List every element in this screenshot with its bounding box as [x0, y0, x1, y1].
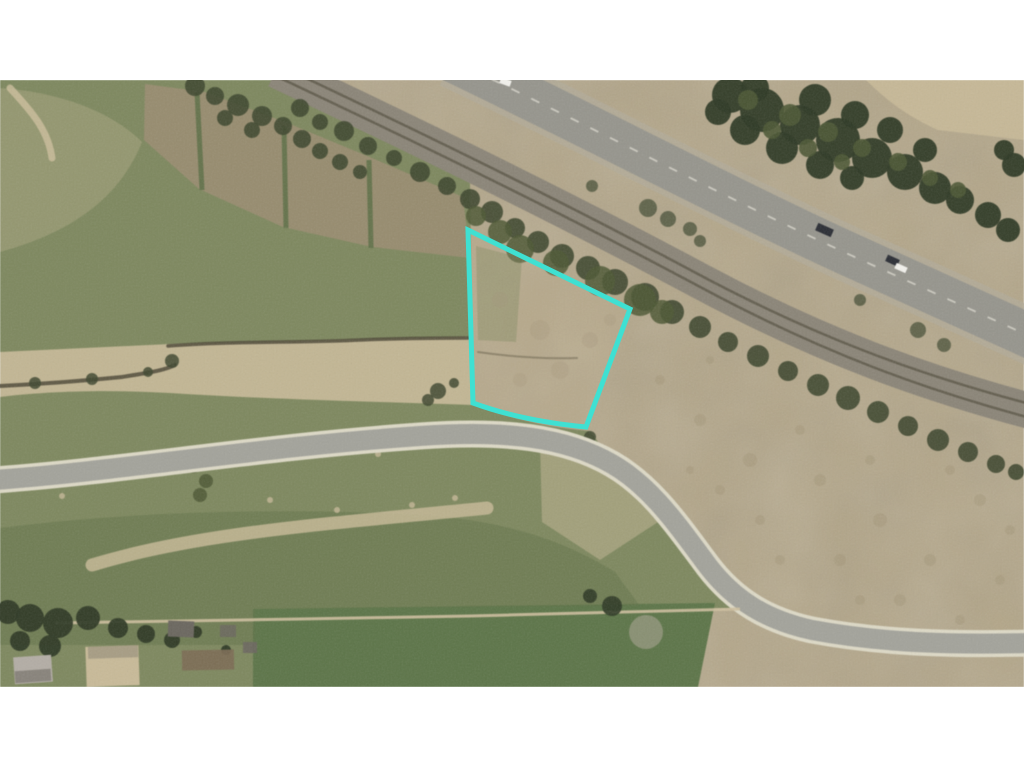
- letterbox-top: [0, 0, 1024, 80]
- strip-divider: [369, 160, 371, 248]
- letterbox-bottom: [0, 687, 1024, 768]
- round-gray-bush: [629, 615, 663, 649]
- aerial-photo: [0, 0, 1024, 768]
- strip-divider: [284, 126, 286, 228]
- aerial-parcel-map: [0, 0, 1024, 768]
